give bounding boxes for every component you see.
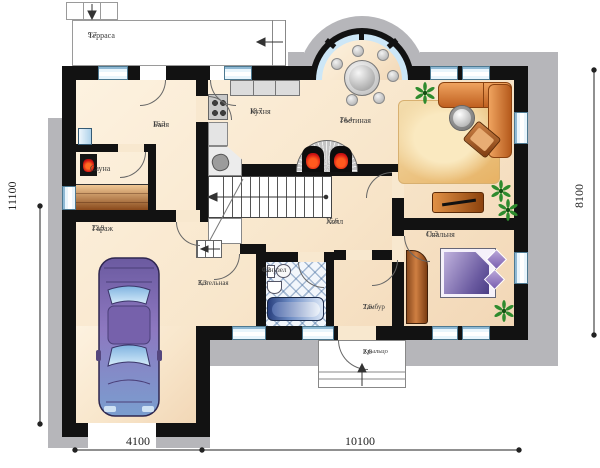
wall-sauna-right [148, 144, 156, 210]
bed-icon [444, 252, 489, 294]
terrace-floor [72, 20, 286, 66]
bathtub-inner [272, 302, 320, 317]
chair-icon [331, 58, 343, 70]
bay-stub-right [410, 66, 426, 80]
window [432, 326, 458, 340]
door-opening-sauna [118, 144, 144, 152]
dim-left-label: 11100 [5, 181, 19, 210]
window [514, 252, 528, 284]
window [62, 186, 76, 210]
garage-gate-opening [88, 423, 156, 437]
wall-banya-partition [76, 144, 156, 152]
door-opening-banya-kitchen [196, 96, 208, 122]
window [224, 66, 252, 80]
floor-plan: Терраса9,7 Баня16,3 Сауна Гараж22,9 Кухн… [0, 0, 600, 468]
door-opening-garage [176, 210, 200, 222]
sauna-bench [76, 184, 148, 210]
bathtub-icon [267, 297, 324, 321]
kitchen-counter-top [230, 80, 300, 96]
door-opening-tambour [346, 250, 372, 260]
bay-stub-left [300, 66, 314, 80]
chair-icon [377, 49, 389, 61]
armchair-cushion [470, 127, 495, 151]
blind-area-bottom-left-b [156, 437, 210, 448]
stair-treads [223, 177, 331, 217]
door-opening-porch [338, 326, 376, 340]
door-opening-terrace-banya [140, 66, 166, 80]
staircase [208, 176, 332, 218]
dim-right-label: 8100 [572, 184, 586, 208]
terrace-column [272, 20, 286, 66]
tv-icon [442, 199, 476, 207]
flame-icon [334, 153, 348, 169]
dining-table-icon [344, 60, 380, 96]
window [462, 66, 490, 80]
plant-icon [414, 82, 436, 104]
bay-mullion [359, 29, 364, 40]
blind-area-right [528, 52, 558, 366]
plant-icon [497, 199, 519, 221]
tv-stand-icon [432, 192, 484, 213]
door-opening-bathroom [298, 252, 324, 262]
window [98, 66, 128, 80]
terrace-steps [66, 2, 118, 20]
kitchen-counter [208, 122, 228, 146]
chair-icon [373, 92, 385, 104]
car-icon [96, 256, 162, 418]
blind-area-left [48, 118, 62, 448]
fireplace-icon [302, 146, 324, 172]
plant-icon [493, 300, 515, 322]
bed-frame [440, 248, 496, 298]
window [430, 66, 458, 80]
window [514, 112, 528, 144]
door-opening-bedroom [392, 236, 404, 262]
blind-area-bay-left [288, 52, 304, 66]
washbasin-icon [78, 128, 92, 145]
window [302, 326, 334, 340]
chair-icon [346, 94, 358, 106]
dim-bottom-right-label: 10100 [345, 434, 375, 448]
sink-icon [267, 281, 282, 294]
fireplace-icon [330, 146, 352, 172]
wall-garage-right [196, 326, 210, 437]
blind-area-top-right [420, 52, 528, 66]
wall-left [62, 66, 76, 437]
flame-icon [306, 153, 320, 169]
blind-area-bottom-left-a [48, 437, 88, 448]
window [232, 326, 266, 340]
chair-icon [352, 45, 364, 57]
wall-bath-right [326, 252, 334, 326]
chair-icon [387, 70, 399, 82]
window [462, 326, 490, 340]
